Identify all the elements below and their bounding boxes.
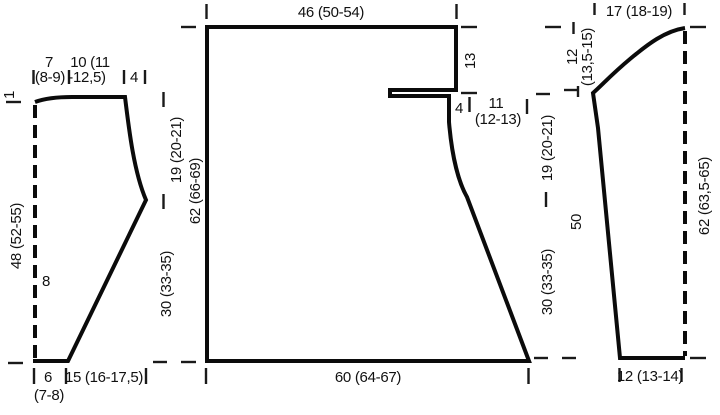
left-piece-outline — [33, 97, 146, 361]
sleeve-cap-height-label-alt: (13,5-15) — [579, 28, 596, 86]
body-length-label: 62 (66-69) — [187, 158, 204, 225]
body-neck-width-label-alt: (12-13) — [475, 111, 522, 128]
left-top-small-width-label: 4 — [130, 69, 138, 86]
sleeve-piece: 17 (18-19) 12 (13,5-15) 50 62 (63,5-65) … — [545, 3, 713, 385]
left-armhole-depth-label: 19 (20-21) — [168, 117, 185, 184]
left-bottom-width2-label: 15 (16-17,5) — [65, 369, 143, 386]
body-top-width-label: 46 (50-54) — [298, 4, 365, 21]
body-piece-outline — [207, 27, 529, 361]
sleeve-seam-length-label: 50 — [568, 214, 585, 230]
body-piece: 46 (50-54) 13 4 11 (12-13) 62 (66-69) 19… — [181, 4, 556, 386]
left-top-rise-label: 1 — [1, 91, 18, 99]
body-armhole-depth-label: 19 (20-21) — [539, 115, 556, 182]
left-side-seam-label: 30 (33-35) — [158, 251, 175, 318]
sleeve-piece-outline — [593, 28, 685, 358]
body-side-seam-label: 30 (33-35) — [539, 249, 556, 316]
left-bottom-width1-alt-label: (7-8) — [34, 387, 64, 404]
left-neck-width-label-alt: -12,5) — [68, 69, 106, 86]
body-bottom-width-label: 60 (64-67) — [335, 369, 402, 386]
sleeve-bottom-width-label: 12 (13-14) — [617, 368, 684, 385]
sleeve-center-length-label: 62 (63,5-65) — [696, 157, 713, 235]
left-length-label: 48 (52-55) — [8, 203, 25, 270]
garment-schematic-canvas: 1 7 (8-9) 10 (11 -12,5) 4 48 (52-55) 8 1… — [0, 0, 720, 415]
left-shoulder-width-label-alt: (8-9) — [35, 69, 65, 86]
left-bottom-width1-label: 6 — [44, 369, 52, 386]
body-neck-width-label: 11 — [489, 95, 504, 112]
body-neck-drop-label: 13 — [462, 53, 479, 69]
pattern-schematic-page: 1 7 (8-9) 10 (11 -12,5) 4 48 (52-55) 8 1… — [0, 0, 720, 415]
sleeve-top-width-label: 17 (18-19) — [606, 3, 673, 20]
left-fold-mark-label: 8 — [42, 273, 50, 290]
body-step-width-label: 4 — [455, 100, 463, 117]
left-piece: 1 7 (8-9) 10 (11 -12,5) 4 48 (52-55) 8 1… — [1, 54, 196, 404]
